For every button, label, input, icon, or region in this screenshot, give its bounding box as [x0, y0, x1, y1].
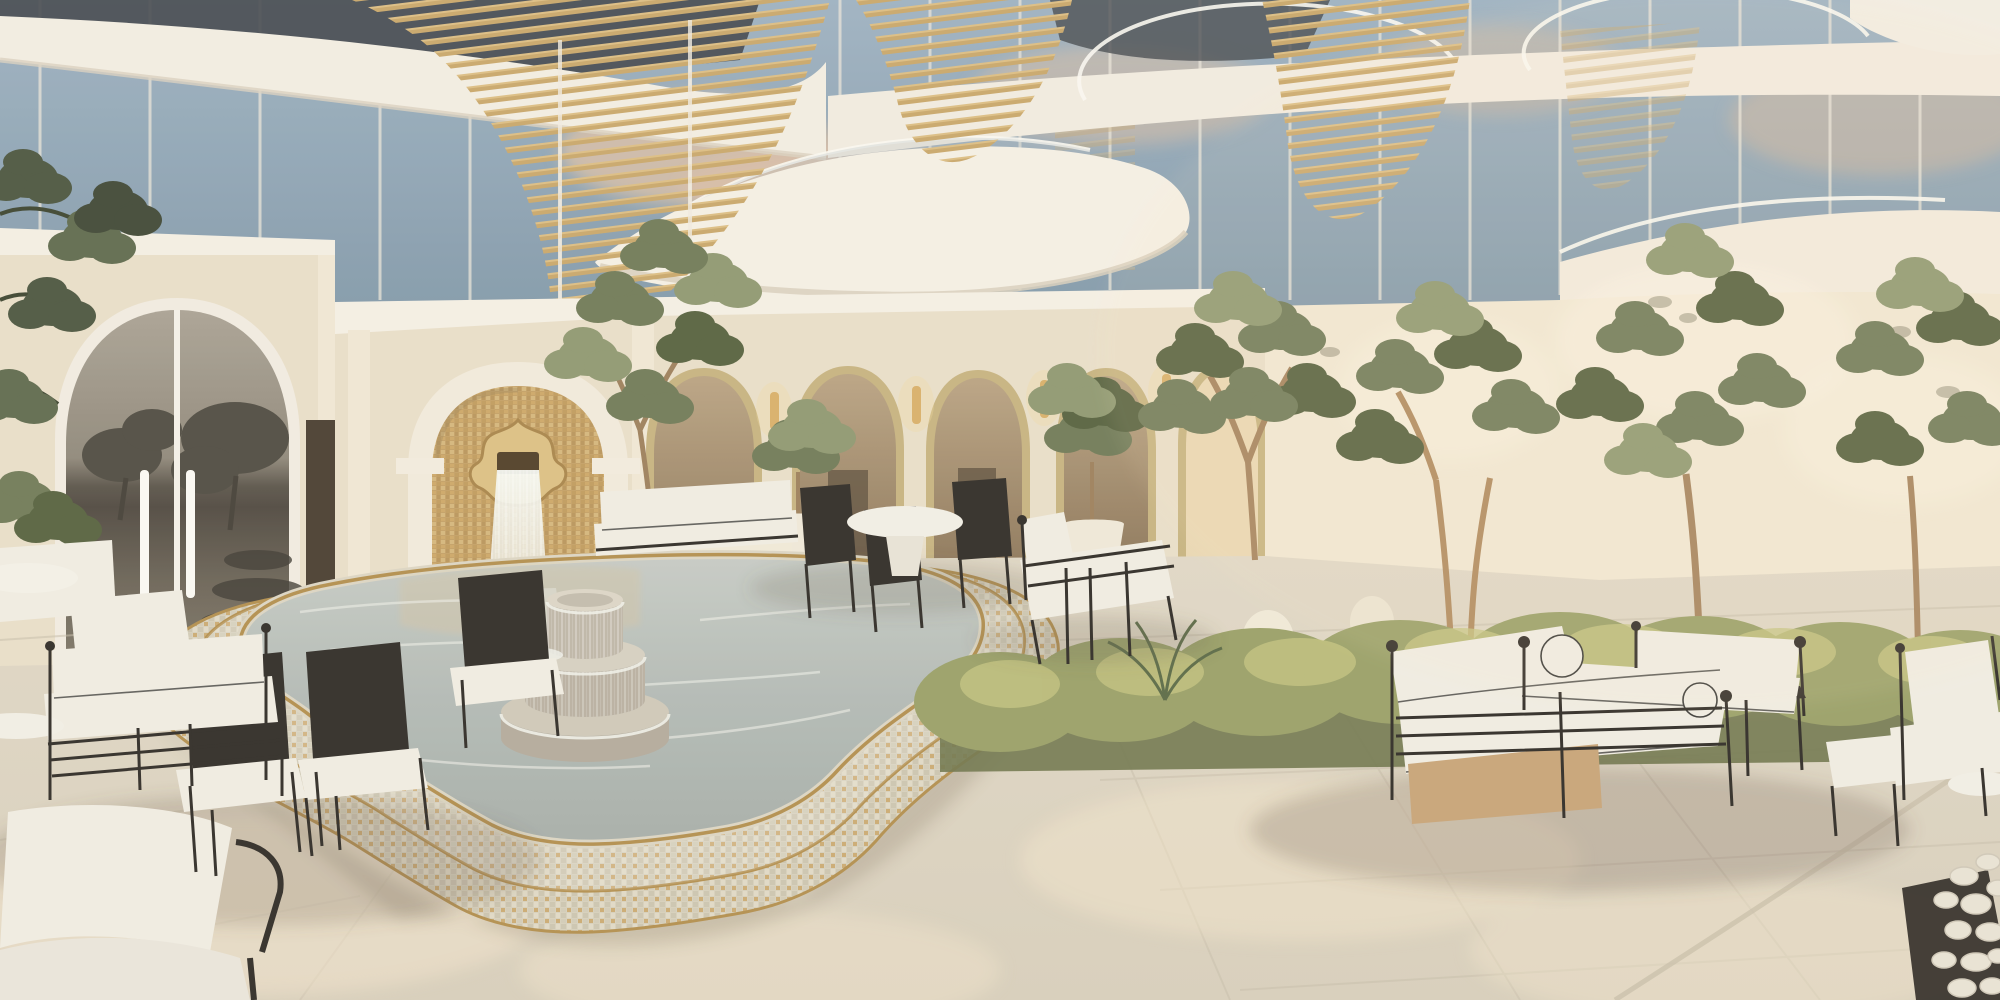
light-overlays: [0, 0, 2000, 1000]
courtyard-render: [0, 0, 2000, 1000]
courtyard-scene: [0, 0, 2000, 1000]
